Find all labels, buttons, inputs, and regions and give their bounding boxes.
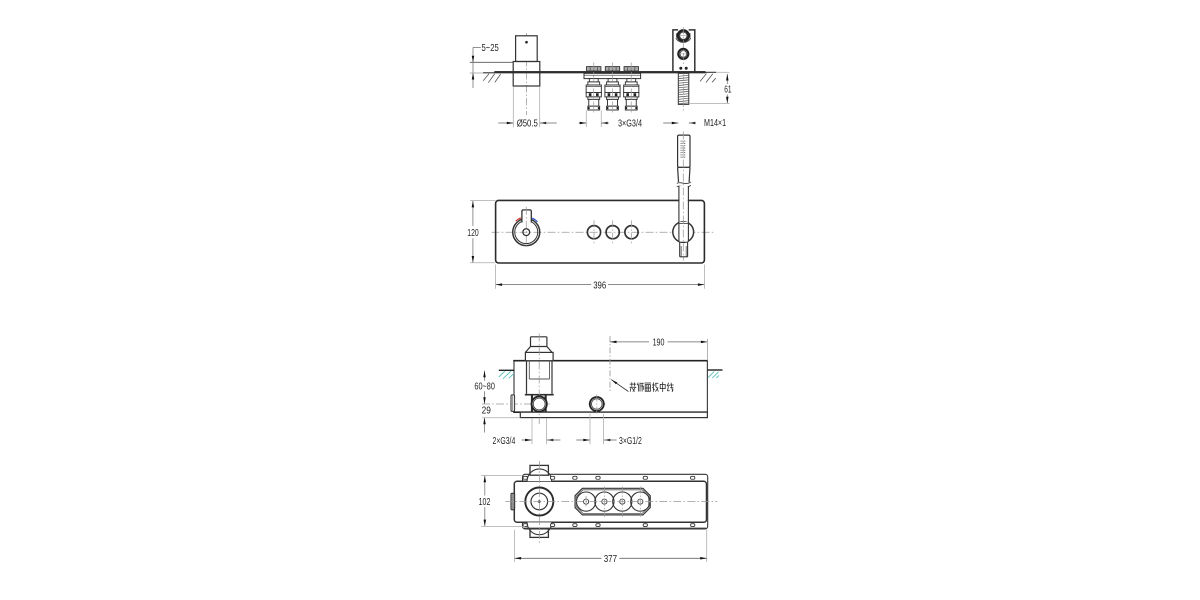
svg-text:29: 29	[482, 405, 491, 417]
svg-text:61: 61	[724, 84, 731, 96]
svg-text:M14×1: M14×1	[704, 117, 726, 129]
svg-text:5~25: 5~25	[482, 42, 499, 54]
svg-text:3×G3/4: 3×G3/4	[618, 117, 642, 129]
svg-text:60~80: 60~80	[474, 380, 495, 392]
svg-text:2×G3/4: 2×G3/4	[493, 435, 516, 447]
svg-text:396: 396	[593, 279, 606, 291]
svg-text:102: 102	[479, 496, 491, 508]
svg-text:Ø50.5: Ø50.5	[517, 118, 538, 130]
svg-text:3×G1/2: 3×G1/2	[619, 435, 642, 447]
svg-text:190: 190	[653, 337, 665, 349]
svg-text:120: 120	[467, 227, 478, 239]
svg-text:377: 377	[604, 553, 618, 565]
